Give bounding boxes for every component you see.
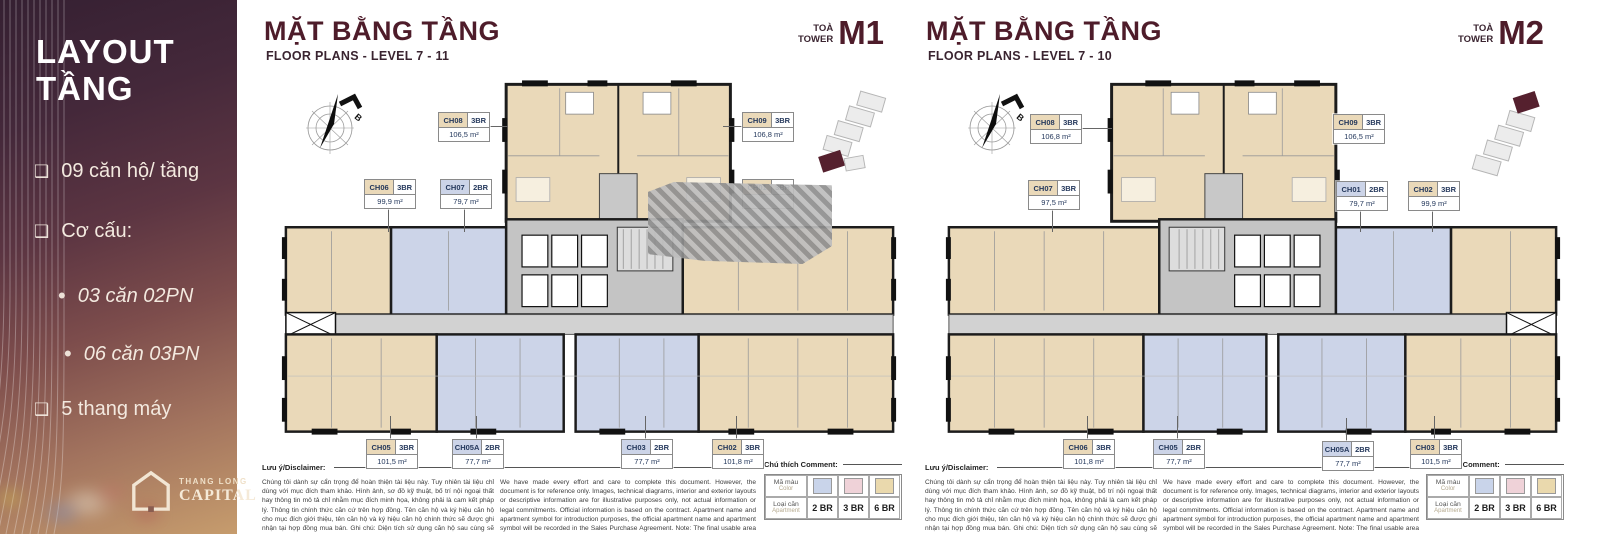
unit-code: CH07 bbox=[441, 180, 470, 194]
sidebar-item-elevators: ❑ 5 thang máy bbox=[34, 398, 171, 421]
brand-name-line2: CAPITAL bbox=[179, 487, 257, 505]
brand-logo: THANG LONG CAPITAL bbox=[130, 468, 257, 514]
unit-type: 2BR bbox=[1183, 440, 1204, 454]
unit-label-ch01: CH012BR 79,7 m² bbox=[1336, 181, 1388, 211]
unit-label-ch05: CH053BR 101,5 m² bbox=[366, 439, 418, 469]
disclaimer-vi: Chúng tôi dành sự cẩn trọng để hoàn thiệ… bbox=[262, 478, 494, 534]
color-swatch-2br bbox=[813, 478, 832, 494]
legend-table: Mã màuColor Loại cănApartment 2 BR 3 BR … bbox=[1426, 474, 1564, 520]
tower-prefix-toa: TOÀ bbox=[813, 23, 833, 34]
legend-m2: Chú thích Comment: Mã màuColor Loại cănA… bbox=[1426, 460, 1564, 520]
unit-area: 101,8 m² bbox=[1064, 455, 1114, 468]
unit-area: 99,9 m² bbox=[1409, 197, 1459, 210]
unit-type: 2BR bbox=[1366, 182, 1387, 196]
pixelated-watermark bbox=[648, 182, 832, 264]
leader-line bbox=[645, 416, 646, 439]
unit-code: CH06 bbox=[1064, 440, 1093, 454]
unit-label-ch02: CH023BR 99,9 m² bbox=[1408, 181, 1460, 211]
unit-label-ch03: CH033BR 101,5 m² bbox=[1410, 439, 1462, 469]
unit-code: CH09 bbox=[1334, 115, 1363, 129]
sidebar-title: LAYOUT TẦNG bbox=[36, 34, 175, 108]
legend-row-label: Loại căn bbox=[1435, 501, 1461, 508]
unit-label-ch05a: CH05A2BR 77,7 m² bbox=[452, 439, 504, 469]
unit-code: CH09 bbox=[743, 113, 772, 127]
leader-line bbox=[1052, 210, 1053, 232]
legend-row-label-en: Apartment bbox=[772, 508, 800, 515]
tower-prefix-tower: TOWER bbox=[798, 34, 833, 45]
unit-label-ch08: CH083BR 106,5 m² bbox=[438, 112, 490, 142]
site-plan-thumbnail-m2 bbox=[1455, 82, 1551, 187]
sidebar-item-label: Cơ cấu: bbox=[61, 220, 132, 243]
legend-value: 6 BR bbox=[1536, 503, 1557, 513]
unit-area: 77,7 m² bbox=[622, 455, 672, 468]
leader-line bbox=[1080, 128, 1112, 129]
unit-area: 77,7 m² bbox=[1154, 455, 1204, 468]
unit-code: CH05A bbox=[453, 440, 482, 454]
disclaimer-label: Lưu ý/Disclaimer: bbox=[262, 463, 325, 472]
unit-area: 101,8 m² bbox=[713, 455, 763, 468]
leader-line bbox=[1434, 416, 1435, 439]
sidebar: LAYOUT TẦNG ❑ 09 căn hộ/ tầng ❑ Cơ cấu: … bbox=[0, 0, 237, 534]
leader-line bbox=[464, 208, 465, 232]
unit-type: 2BR bbox=[482, 440, 503, 454]
unit-type: 2BR bbox=[651, 440, 672, 454]
sidebar-item-label: 09 căn hộ/ tầng bbox=[61, 160, 199, 183]
color-swatch-3br bbox=[1506, 478, 1525, 494]
leader-line bbox=[723, 126, 742, 127]
sidebar-item-2pn: • 03 căn 02PN bbox=[58, 283, 193, 309]
unit-type: 3BR bbox=[468, 113, 489, 127]
legend-value: 2 BR bbox=[1474, 503, 1495, 513]
legend-row-label: Loại căn bbox=[773, 501, 799, 508]
sidebar-item-3pn: • 06 căn 03PN bbox=[64, 341, 199, 367]
unit-type: 3BR bbox=[742, 440, 763, 454]
page-subtitle-m1: FLOOR PLANS - LEVEL 7 - 11 bbox=[266, 49, 449, 63]
unit-area: 106,8 m² bbox=[743, 128, 793, 141]
legend-row-label: Mã màu bbox=[1436, 479, 1461, 486]
unit-label-ch08: CH083BR 106,8 m² bbox=[1030, 114, 1082, 144]
unit-type: 3BR bbox=[1440, 440, 1461, 454]
legend-value: 6 BR bbox=[874, 503, 895, 513]
leader-line bbox=[390, 416, 391, 439]
page-title-m1: MẶT BẰNG TẦNG bbox=[264, 16, 500, 47]
unit-area: 101,5 m² bbox=[367, 455, 417, 468]
unit-type: 2BR bbox=[1352, 442, 1373, 456]
leader-line bbox=[488, 126, 508, 127]
unit-area: 106,5 m² bbox=[439, 128, 489, 141]
leader-line bbox=[1360, 211, 1361, 232]
unit-label-ch09: CH093BR 106,8 m² bbox=[742, 112, 794, 142]
leader-line bbox=[736, 416, 737, 439]
tower-prefix-tower: TOWER bbox=[1458, 34, 1493, 45]
disclaimer-label: Lưu ý/Disclaimer: bbox=[925, 463, 988, 472]
legend-row-label: Mã màu bbox=[774, 479, 799, 486]
tower-tag-m1: TOÀ TOWER M1 bbox=[798, 16, 884, 49]
unit-area: 79,7 m² bbox=[441, 195, 491, 208]
unit-code: CH06 bbox=[365, 180, 394, 194]
sidebar-item-units-per-floor: ❑ 09 căn hộ/ tầng bbox=[34, 160, 199, 183]
sidebar-title-line2: TẦNG bbox=[36, 71, 175, 108]
sidebar-title-line1: LAYOUT bbox=[36, 34, 175, 71]
unit-label-ch07: CH072BR 79,7 m² bbox=[440, 179, 492, 209]
checkbox-icon: ❑ bbox=[34, 222, 49, 242]
tower-prefix-toa: TOÀ bbox=[1473, 23, 1493, 34]
unit-code: CH05 bbox=[367, 440, 396, 454]
unit-type: 3BR bbox=[1438, 182, 1459, 196]
unit-type: 3BR bbox=[396, 440, 417, 454]
unit-label-ch03: CH032BR 77,7 m² bbox=[621, 439, 673, 469]
unit-label-ch05: CH052BR 77,7 m² bbox=[1153, 439, 1205, 469]
tower-code: M2 bbox=[1498, 16, 1544, 49]
unit-type: 3BR bbox=[394, 180, 415, 194]
unit-type: 3BR bbox=[1060, 115, 1081, 129]
unit-type: 3BR bbox=[1093, 440, 1114, 454]
leader-line bbox=[1346, 418, 1347, 441]
unit-code: CH02 bbox=[713, 440, 742, 454]
leader-line bbox=[1087, 416, 1088, 439]
color-swatch-2br bbox=[1475, 478, 1494, 494]
unit-area: 97,5 m² bbox=[1029, 196, 1079, 209]
unit-code: CH07 bbox=[1029, 181, 1058, 195]
unit-area: 99,9 m² bbox=[365, 195, 415, 208]
site-plan-thumbnail-m1 bbox=[795, 82, 891, 182]
unit-code: CH05 bbox=[1154, 440, 1183, 454]
unit-label-ch07: CH073BR 97,5 m² bbox=[1028, 180, 1080, 210]
legend-row-label-en: Color bbox=[1441, 486, 1455, 493]
leader-line bbox=[1177, 416, 1178, 439]
compass-icon: B bbox=[298, 88, 368, 158]
legend-row-label-en: Color bbox=[779, 486, 793, 493]
unit-area: 77,7 m² bbox=[1323, 457, 1373, 470]
unit-area: 77,7 m² bbox=[453, 455, 503, 468]
legend-value: 2 BR bbox=[812, 503, 833, 513]
legend-m1: Chú thích Comment: Mã màuColor Loại cănA… bbox=[764, 460, 902, 520]
legend-title: Chú thích Comment: bbox=[764, 460, 838, 469]
checkbox-icon: ❑ bbox=[34, 162, 49, 182]
tower-tag-m2: TOÀ TOWER M2 bbox=[1458, 16, 1544, 49]
unit-area: 101,5 m² bbox=[1411, 455, 1461, 468]
unit-code: CH08 bbox=[439, 113, 468, 127]
leader-line bbox=[476, 416, 477, 439]
unit-label-ch09: CH093BR 106,5 m² bbox=[1333, 114, 1385, 144]
bullet-icon: • bbox=[64, 341, 72, 367]
disclaimer-en: We have made every effort and care to co… bbox=[1163, 478, 1419, 534]
compass-north-label: B bbox=[353, 112, 365, 124]
legend-table: Mã màuColor Loại cănApartment 2 BR 3 BR … bbox=[764, 474, 902, 520]
legend-value: 3 BR bbox=[843, 503, 864, 513]
page-subtitle-m2: FLOOR PLANS - LEVEL 7 - 10 bbox=[928, 49, 1112, 63]
unit-label-ch06: CH063BR 99,9 m² bbox=[364, 179, 416, 209]
color-swatch-3br bbox=[844, 478, 863, 494]
unit-type: 3BR bbox=[772, 113, 793, 127]
legend-value: 3 BR bbox=[1505, 503, 1526, 513]
compass-north-label: B bbox=[1015, 112, 1027, 124]
sidebar-item-label: 5 thang máy bbox=[61, 398, 171, 421]
sidebar-item-label: 03 căn 02PN bbox=[78, 285, 194, 308]
disclaimer-vi: Chúng tôi dành sự cẩn trọng để hoàn thiệ… bbox=[925, 478, 1157, 534]
checkbox-icon: ❑ bbox=[34, 400, 49, 420]
unit-label-ch05a: CH05A2BR 77,7 m² bbox=[1322, 441, 1374, 471]
unit-type: 3BR bbox=[1363, 115, 1384, 129]
disclaimer-en: We have made every effort and care to co… bbox=[500, 478, 756, 534]
unit-code: CH03 bbox=[622, 440, 651, 454]
unit-code: CH03 bbox=[1411, 440, 1440, 454]
color-swatch-6br bbox=[875, 478, 894, 494]
slide: LAYOUT TẦNG ❑ 09 căn hộ/ tầng ❑ Cơ cấu: … bbox=[0, 0, 1600, 534]
page-title-m2: MẶT BẰNG TẦNG bbox=[926, 16, 1162, 47]
sidebar-item-label: 06 căn 03PN bbox=[84, 343, 200, 366]
compass-icon: B bbox=[960, 88, 1030, 158]
unit-label-ch02: CH023BR 101,8 m² bbox=[712, 439, 764, 469]
leader-line bbox=[388, 208, 389, 232]
bullet-icon: • bbox=[58, 283, 66, 309]
unit-type: 2BR bbox=[470, 180, 491, 194]
tower-code: M1 bbox=[838, 16, 884, 49]
unit-code: CH01 bbox=[1337, 182, 1366, 196]
unit-code: CH02 bbox=[1409, 182, 1438, 196]
unit-code: CH08 bbox=[1031, 115, 1060, 129]
unit-type: 3BR bbox=[1058, 181, 1079, 195]
sidebar-item-structure: ❑ Cơ cấu: bbox=[34, 220, 132, 243]
unit-area: 106,5 m² bbox=[1334, 130, 1384, 143]
leader-line bbox=[1432, 211, 1433, 232]
unit-area: 79,7 m² bbox=[1337, 197, 1387, 210]
unit-code: CH05A bbox=[1323, 442, 1352, 456]
unit-label-ch06: CH063BR 101,8 m² bbox=[1063, 439, 1115, 469]
unit-area: 106,8 m² bbox=[1031, 130, 1081, 143]
brand-name-line1: THANG LONG bbox=[179, 478, 257, 487]
legend-row-label-en: Apartment bbox=[1434, 508, 1462, 515]
house-icon bbox=[130, 468, 172, 514]
color-swatch-6br bbox=[1537, 478, 1556, 494]
